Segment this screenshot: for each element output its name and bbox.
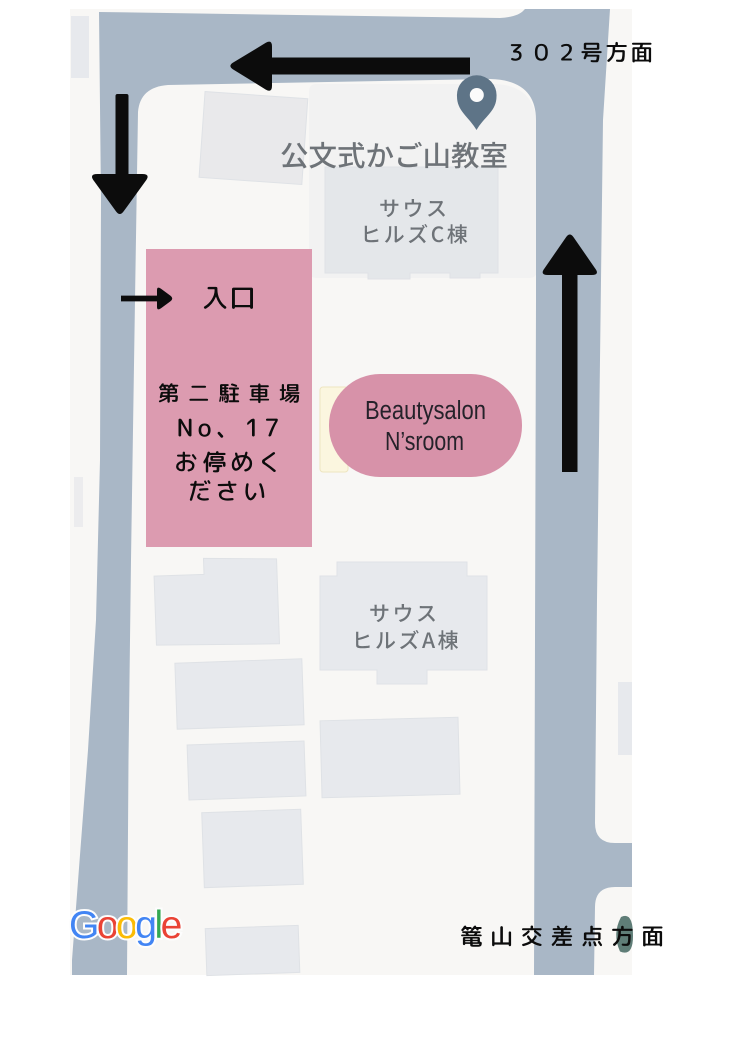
svg-text:Beautysalon: Beautysalon	[365, 397, 486, 425]
svg-text:Google: Google	[69, 904, 181, 947]
svg-text:N’sroom: N’sroom	[385, 428, 464, 456]
